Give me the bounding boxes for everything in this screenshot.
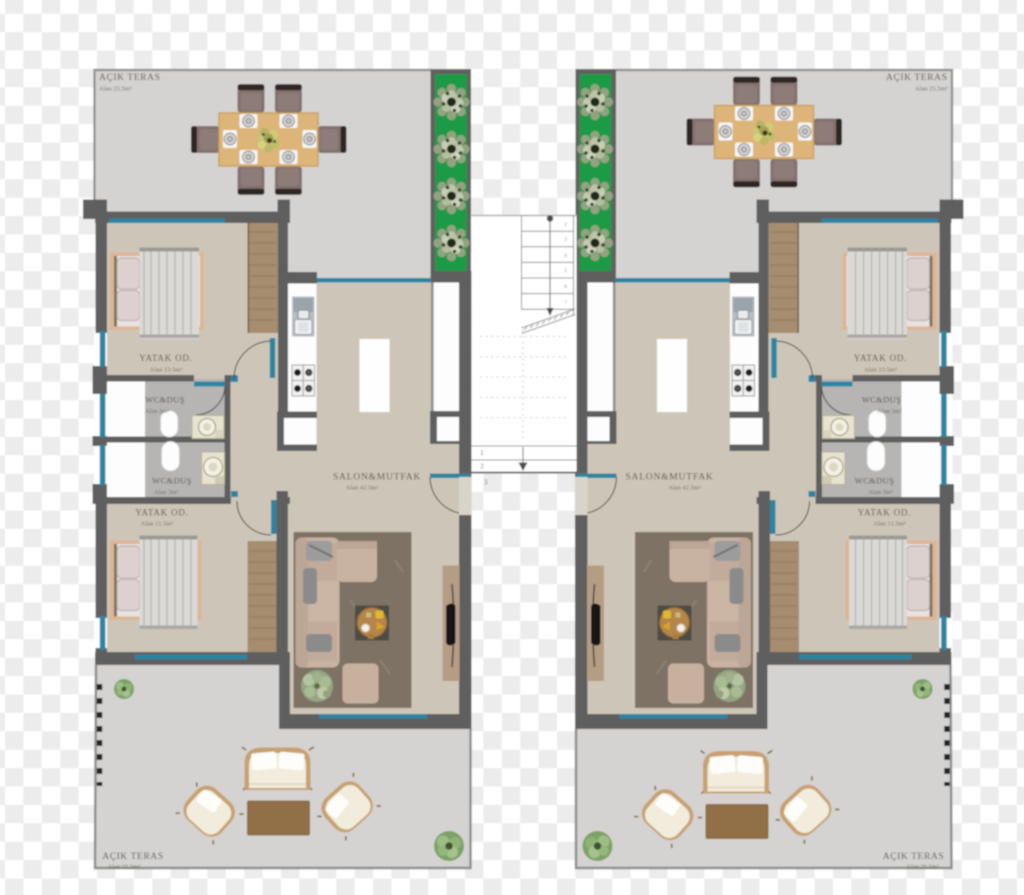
- svg-text:Alan 11.5m²: Alan 11.5m²: [873, 521, 905, 528]
- svg-text:Alan 25.5m²: Alan 25.5m²: [108, 864, 141, 871]
- svg-text:Alan 42.5m²: Alan 42.5m²: [346, 485, 379, 492]
- svg-text:WC&DUŞ: WC&DUŞ: [145, 395, 185, 405]
- svg-text:Alan 3m²: Alan 3m²: [154, 489, 179, 496]
- svg-text:Alan 13.5m²: Alan 13.5m²: [864, 367, 897, 374]
- svg-text:Alan 3m²: Alan 3m²: [877, 408, 902, 415]
- svg-text:WC&DUŞ: WC&DUŞ: [855, 476, 895, 486]
- svg-text:YATAK OD.: YATAK OD.: [858, 508, 911, 518]
- svg-text:Alan 25.5m²: Alan 25.5m²: [99, 86, 132, 93]
- svg-text:5: 5: [564, 268, 567, 274]
- svg-text:SALON&MUTFAK: SALON&MUTFAK: [333, 473, 421, 483]
- svg-text:YATAK OD.: YATAK OD.: [135, 508, 188, 518]
- svg-text:Alan 13.5m²: Alan 13.5m²: [150, 367, 183, 374]
- svg-text:7: 7: [564, 300, 567, 306]
- svg-text:3: 3: [564, 237, 567, 243]
- svg-text:AÇIK TERAS: AÇIK TERAS: [886, 73, 948, 83]
- svg-text:WC&DUŞ: WC&DUŞ: [152, 476, 192, 486]
- svg-text:AÇIK TERAS: AÇIK TERAS: [102, 852, 164, 862]
- svg-text:2: 2: [480, 463, 484, 471]
- svg-text:1: 1: [480, 449, 484, 457]
- svg-text:Alan 11.5m²: Alan 11.5m²: [141, 521, 173, 528]
- svg-text:6: 6: [564, 284, 567, 290]
- svg-text:Alan 3m²: Alan 3m²: [145, 408, 170, 415]
- svg-text:SALON&MUTFAK: SALON&MUTFAK: [625, 473, 713, 483]
- svg-text:WC&DUŞ: WC&DUŞ: [862, 395, 902, 405]
- svg-text:YATAK OD.: YATAK OD.: [139, 353, 192, 363]
- svg-text:Alan 25.5m²: Alan 25.5m²: [906, 864, 939, 871]
- svg-text:3: 3: [484, 479, 488, 487]
- svg-text:2: 2: [564, 222, 567, 228]
- svg-text:YATAK OD.: YATAK OD.: [854, 353, 907, 363]
- svg-text:AÇIK TERAS: AÇIK TERAS: [883, 852, 945, 862]
- svg-text:AÇIK TERAS: AÇIK TERAS: [99, 73, 161, 83]
- svg-text:Alan 25.5m²: Alan 25.5m²: [915, 86, 948, 93]
- svg-text:4: 4: [564, 253, 567, 259]
- svg-text:Alan 3m²: Alan 3m²: [868, 489, 893, 496]
- svg-text:Alan 42.5m²: Alan 42.5m²: [668, 485, 701, 492]
